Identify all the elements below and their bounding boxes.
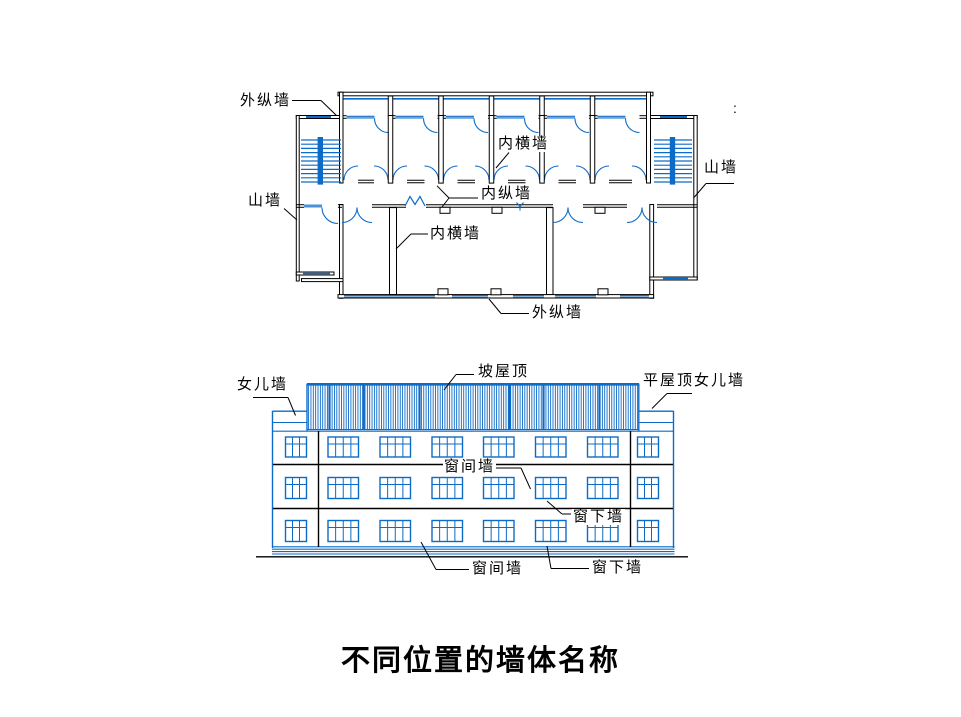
label-interior-longitudinal-wall: 内纵墙 — [480, 186, 533, 202]
label-exterior-longitudinal-wall-top: 外纵墙 — [239, 93, 292, 109]
page-title: 不同位置的墙体名称 — [0, 637, 961, 679]
label-pitched-roof: 坡屋顶 — [477, 364, 530, 380]
label-parapet-wall: 女儿墙 — [236, 377, 289, 393]
slide-page: 外纵墙 内横墙 山墙 内纵墙 内横墙 外纵墙 山墙 女儿墙 坡屋顶 平屋顶女儿墙… — [0, 0, 961, 717]
label-interior-transverse-wall-top: 内横墙 — [497, 136, 550, 152]
stray-colon-mark: : — [733, 100, 737, 116]
label-gable-wall-left: 山墙 — [247, 193, 283, 209]
label-window-pier-middle: 窗间墙 — [443, 459, 496, 475]
label-flat-roof-parapet: 平屋顶女儿墙 — [642, 373, 746, 389]
wall-types-technical-drawing — [0, 0, 961, 717]
label-interior-transverse-wall-bottom: 内横墙 — [429, 226, 482, 242]
label-gable-wall-right: 山墙 — [703, 160, 739, 176]
label-window-sill-wall-mid: 窗下墙 — [572, 509, 625, 525]
label-window-pier-bottom: 窗间墙 — [471, 561, 524, 577]
label-window-sill-wall-bot: 窗下墙 — [591, 560, 644, 576]
label-exterior-longitudinal-wall-bottom: 外纵墙 — [531, 305, 584, 321]
